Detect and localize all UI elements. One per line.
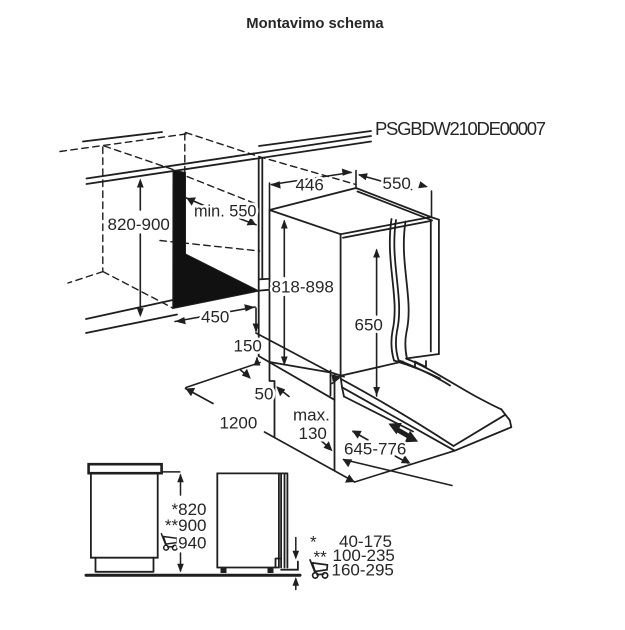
svg-text:max.: max.	[293, 406, 330, 425]
svg-text:818-898: 818-898	[272, 278, 334, 297]
svg-text:820-900: 820-900	[108, 215, 170, 234]
svg-text:min. 550: min. 550	[194, 203, 256, 221]
svg-text:Montavimo schema: Montavimo schema	[246, 16, 384, 32]
svg-text:446: 446	[296, 176, 324, 195]
svg-text:645-776: 645-776	[344, 440, 406, 459]
svg-text:940: 940	[178, 534, 206, 553]
svg-text:PSGBDW210DE00007: PSGBDW210DE00007	[375, 118, 546, 139]
svg-text:1200: 1200	[220, 414, 258, 433]
svg-text:**: **	[314, 548, 328, 567]
svg-text:550: 550	[383, 174, 411, 193]
svg-text:50: 50	[255, 385, 274, 404]
svg-text:160-295: 160-295	[332, 561, 394, 580]
svg-text:650: 650	[355, 316, 383, 335]
svg-text:450: 450	[201, 308, 229, 327]
svg-text:130: 130	[299, 424, 327, 443]
svg-text:150: 150	[234, 337, 262, 356]
svg-text:**900: **900	[165, 516, 207, 535]
